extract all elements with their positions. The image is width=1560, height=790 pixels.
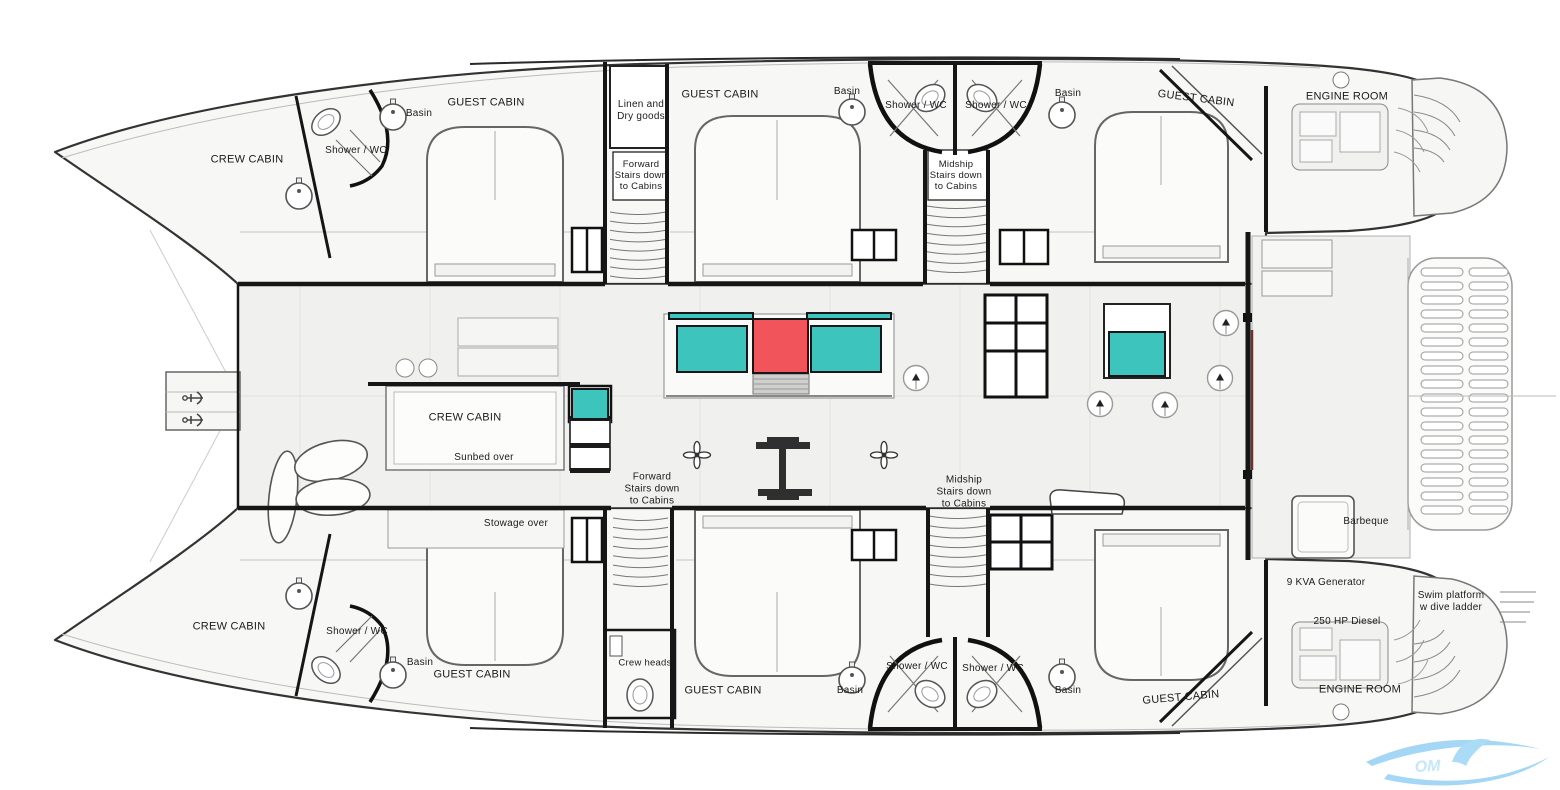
speaker-icon: [1153, 393, 1178, 418]
speaker-icon: [1088, 392, 1113, 417]
anchor-platform: [166, 372, 240, 430]
watermark-text: OM: [1414, 758, 1441, 776]
midship-stairs-box: [928, 150, 988, 200]
galley: [664, 314, 894, 398]
linen-closet: [610, 66, 666, 148]
crew-heads-room: [605, 630, 675, 718]
speaker-icon: [1208, 366, 1233, 391]
saloon-cabinet: [1104, 304, 1170, 378]
yacht-floor-plan-svg: OM: [0, 0, 1560, 790]
stowage-room: [388, 510, 564, 548]
dive-ladder: [1500, 592, 1536, 622]
watermark: OM: [1366, 739, 1549, 786]
transom-top: [1412, 78, 1507, 216]
stern-area: [1243, 236, 1410, 558]
speaker-icon: [904, 366, 929, 391]
forward-stairs-box: [613, 152, 668, 200]
transom-bottom: [1412, 576, 1536, 714]
yacht-floor-plan: OM CREW CABINShower / WCBasinGUEST CABIN…: [0, 0, 1560, 790]
cockpit-seat: [1050, 490, 1124, 514]
speaker-icon: [1214, 311, 1239, 336]
swim-platform-center: [1408, 258, 1556, 530]
barbeque-unit: [1292, 496, 1354, 558]
